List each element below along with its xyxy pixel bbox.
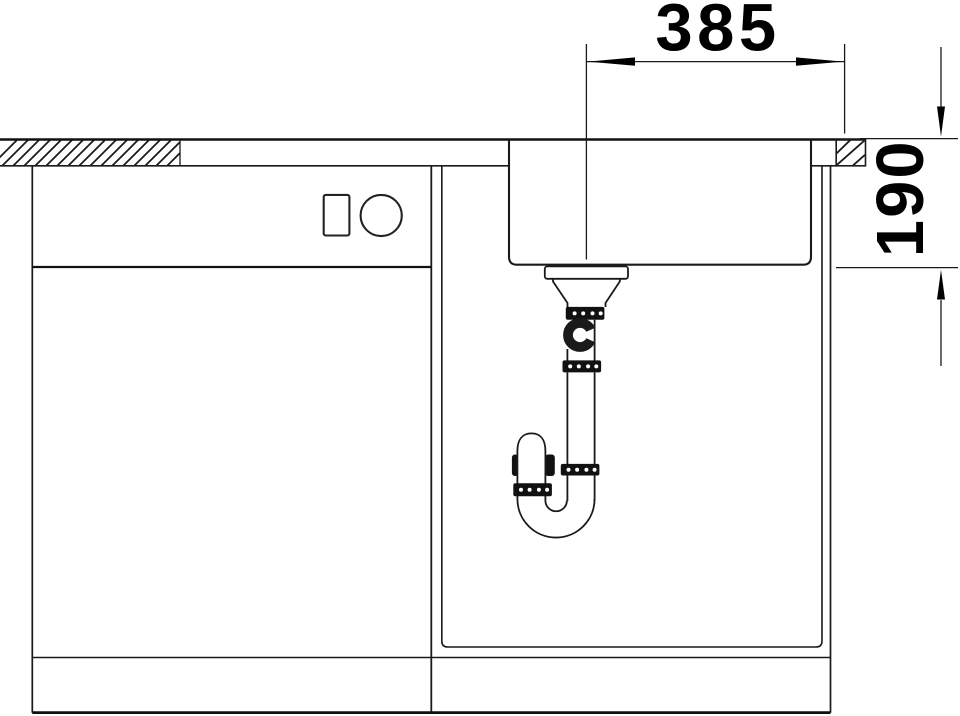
svg-text:385: 385	[655, 0, 780, 66]
svg-text:190: 190	[863, 139, 938, 257]
